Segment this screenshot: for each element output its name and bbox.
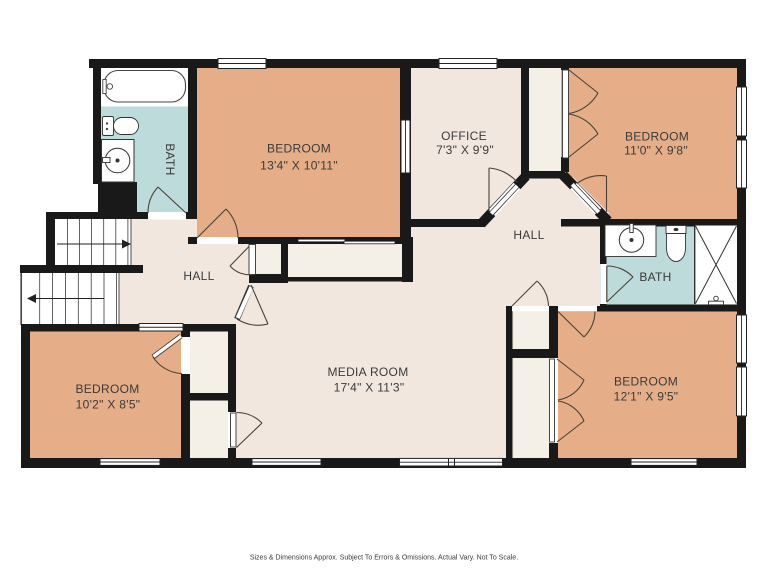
svg-text:MEDIA ROOM: MEDIA ROOM [327, 365, 408, 379]
svg-text:BEDROOM: BEDROOM [614, 375, 678, 389]
svg-text:10'2" X 8'5": 10'2" X 8'5" [76, 398, 141, 412]
svg-text:HALL: HALL [513, 228, 544, 242]
svg-text:Sizes & Dimensions Approx. Sub: Sizes & Dimensions Approx. Subject To Er… [250, 555, 518, 562]
svg-text:7'3" X 9'9": 7'3" X 9'9" [436, 143, 494, 157]
svg-text:BEDROOM: BEDROOM [75, 382, 139, 396]
svg-text:BEDROOM: BEDROOM [267, 142, 331, 156]
svg-text:17'4" X 11'3": 17'4" X 11'3" [334, 381, 405, 395]
svg-text:12'1" X 9'5": 12'1" X 9'5" [614, 390, 679, 404]
svg-text:11'0" X 9'8": 11'0" X 9'8" [624, 144, 688, 158]
svg-text:OFFICE: OFFICE [441, 129, 487, 143]
svg-text:BEDROOM: BEDROOM [625, 130, 689, 144]
svg-text:BATH: BATH [163, 143, 177, 175]
svg-text:13'4" X 10'11": 13'4" X 10'11" [260, 159, 338, 173]
svg-text:HALL: HALL [183, 269, 214, 283]
svg-text:BATH: BATH [639, 270, 671, 284]
